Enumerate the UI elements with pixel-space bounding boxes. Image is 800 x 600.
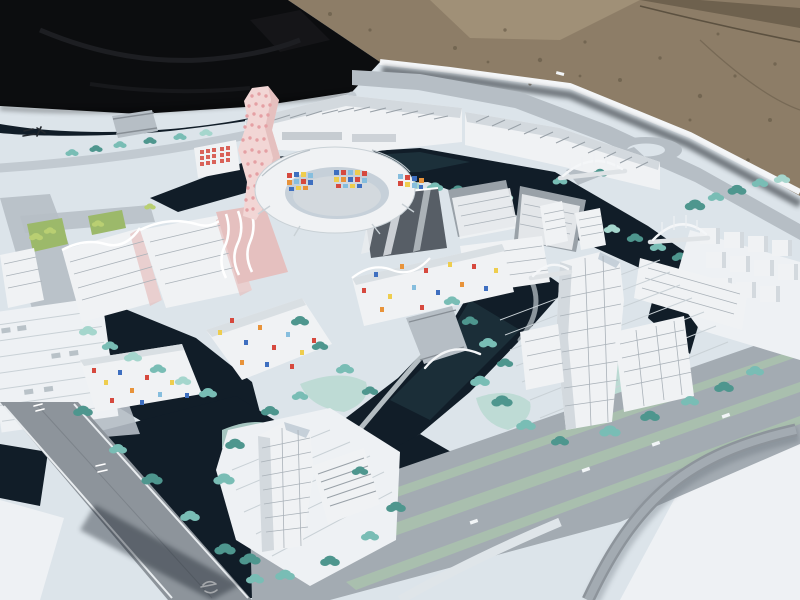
scene-canvas: Outdoor photograph of a white architectu… bbox=[0, 0, 800, 600]
photo-architectural-model: Outdoor photograph of a white architectu… bbox=[0, 0, 800, 600]
tower-west-slab bbox=[520, 324, 564, 390]
